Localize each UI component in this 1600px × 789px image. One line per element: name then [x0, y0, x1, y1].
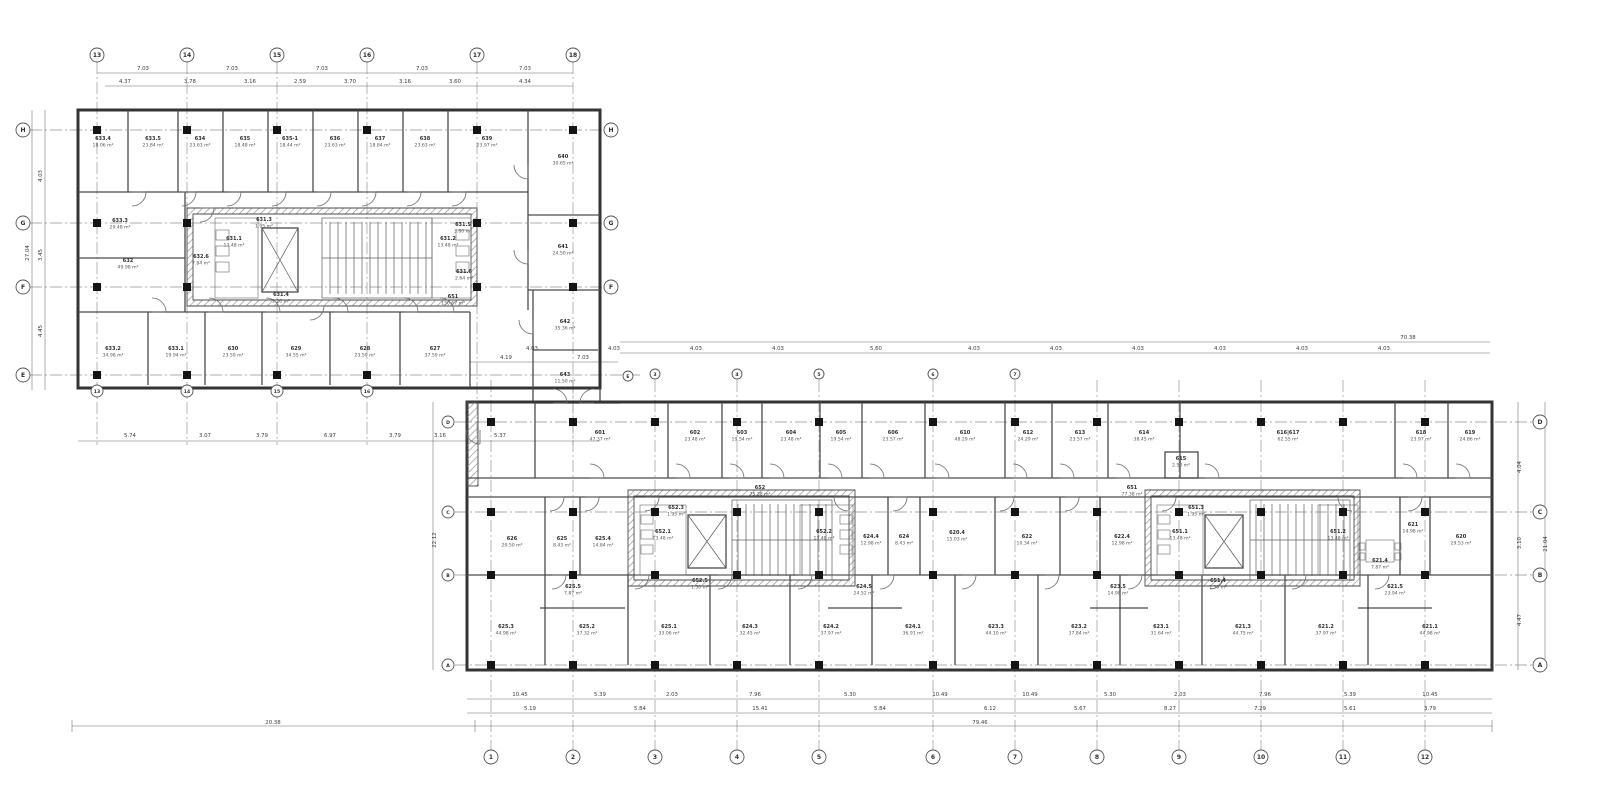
- column-marker: [473, 219, 481, 227]
- room-area: 23.59 m²: [223, 353, 244, 359]
- room-area: 1.95 m²: [255, 224, 273, 230]
- room-area: 24.29 m²: [1018, 437, 1039, 443]
- room-area: 1.50 m²: [691, 585, 709, 591]
- dimension-text: 3.70: [344, 79, 357, 85]
- room-number: 612: [1023, 430, 1034, 436]
- column-marker: [569, 126, 577, 134]
- room-number: 621.1: [1422, 624, 1438, 630]
- room-area: 30.65 m²: [553, 161, 574, 167]
- room-number: 652: [755, 485, 766, 491]
- grid-bubble-label: 7: [1013, 372, 1016, 378]
- dimension-text: 70.38: [1400, 335, 1416, 341]
- room-number: 643: [560, 372, 571, 378]
- column-marker: [651, 661, 659, 669]
- room-area: 13.48 m²: [224, 243, 245, 249]
- dimension-text: 5.30: [1104, 692, 1117, 698]
- grid-bubble-label: 4: [735, 754, 739, 761]
- room-number: 624.5: [856, 584, 872, 590]
- room-number: 622: [1022, 534, 1033, 540]
- grid-bubble-label: 7: [1013, 754, 1017, 761]
- dimension-text: 5.19: [524, 706, 537, 712]
- dimension-text: 3.79: [1424, 706, 1437, 712]
- room-number: 623.5: [1110, 584, 1126, 590]
- room-area: 34.55 m²: [286, 353, 307, 359]
- room-area: 37.59 m²: [425, 353, 446, 359]
- room-number: 621.4: [1372, 558, 1388, 564]
- room-number: 633.1: [168, 346, 184, 352]
- dimension-text: 4.45: [38, 325, 44, 337]
- room-number: 606: [888, 430, 899, 436]
- room-number: 602: [690, 430, 701, 436]
- room-area: 33.06 m²: [659, 631, 680, 637]
- dimension-text: 3.16: [399, 79, 412, 85]
- room-number: 621.2: [1318, 624, 1334, 630]
- elevator-x-icon: [262, 228, 298, 292]
- column-marker: [1093, 508, 1101, 516]
- grid-bubble-label: 3: [653, 754, 657, 761]
- dimension-text: 2.03: [1174, 692, 1186, 698]
- dimension-text: 27.04: [25, 245, 31, 261]
- room-area: 23.97 m²: [477, 143, 498, 149]
- room-area: 7.87 m²: [1371, 565, 1389, 571]
- dimension-text: 21.04: [1543, 536, 1549, 552]
- room-number: 624: [899, 534, 910, 540]
- room-number: 652.1: [655, 529, 671, 535]
- dimension-text: 4.03: [1378, 346, 1390, 352]
- room-number: 651.4: [1210, 578, 1226, 584]
- room-number: 621.5: [1387, 584, 1403, 590]
- column-marker: [569, 418, 577, 426]
- column-marker: [1011, 418, 1019, 426]
- grid-bubble-label: 13: [94, 389, 100, 395]
- grid-bubble-label: 14: [183, 52, 191, 59]
- room-number: 626: [507, 536, 518, 542]
- room-area: 77.38 m²: [1122, 492, 1143, 498]
- room-area: 24.86 m²: [1460, 437, 1481, 443]
- column-marker: [1175, 508, 1183, 516]
- room-area: 23.97 m²: [1411, 437, 1432, 443]
- room-area: 8.43 m²: [895, 541, 913, 547]
- room-area: 24.50 m²: [553, 251, 574, 257]
- dimension-text: 4.03: [1214, 346, 1226, 352]
- grid-bubble-label: 13: [93, 52, 101, 59]
- column-marker: [93, 371, 101, 379]
- door-swings: [132, 165, 1470, 589]
- room-number: 651.2: [1330, 529, 1346, 535]
- room-area: 1.20 m²: [272, 299, 290, 305]
- room-area: 49.98 m²: [118, 265, 139, 271]
- dimension-text: 7.03: [226, 66, 238, 72]
- room-number: 625.5: [565, 584, 581, 590]
- column-marker: [1421, 571, 1429, 579]
- dimension-text: 5.61: [1344, 706, 1356, 712]
- grid-bubble-label: 1: [489, 754, 493, 761]
- room-number: 640: [558, 154, 569, 160]
- room-area: 7.87 m²: [564, 591, 582, 597]
- room-number: 604: [786, 430, 797, 436]
- column-marker: [1421, 418, 1429, 426]
- column-marker: [273, 371, 281, 379]
- column-marker: [1257, 508, 1265, 516]
- room-area: 32.45 m²: [740, 631, 761, 637]
- room-number: 651.3: [1188, 505, 1204, 511]
- grid-bubble-label: F: [609, 284, 613, 291]
- room-area: 38.45 m²: [1134, 437, 1155, 443]
- column-marker: [1257, 418, 1265, 426]
- column-marker: [1175, 571, 1183, 579]
- room-number: 624.2: [823, 624, 839, 630]
- room-area: 23.94 m²: [1385, 591, 1406, 597]
- room-area: 13.48 m²: [438, 243, 459, 249]
- dimension-text: 4.04: [1517, 460, 1523, 473]
- grid-bubble-label: 15: [273, 52, 281, 59]
- room-area: 18.44 m²: [280, 143, 301, 149]
- room-number: 618: [1416, 430, 1427, 436]
- room-area: 12.98 m²: [1112, 541, 1133, 547]
- room-area: 13.48 m²: [653, 536, 674, 542]
- dimension-text: 10.49: [1022, 692, 1038, 698]
- column-marker: [1011, 661, 1019, 669]
- dimension-text: 4.03: [1132, 346, 1144, 352]
- column-marker: [1339, 571, 1347, 579]
- room-area: 37.97 m²: [821, 631, 842, 637]
- column-marker: [733, 508, 741, 516]
- room-number: 633.4: [95, 136, 111, 142]
- room-number: 631.3: [256, 217, 272, 223]
- room-area: 10.34 m²: [1017, 541, 1038, 547]
- column-marker: [733, 418, 741, 426]
- grid-bubble-label: B: [446, 573, 450, 579]
- room-number: 631.2: [440, 236, 456, 242]
- dimension-text: 20.38: [265, 720, 281, 726]
- column-marker: [1175, 418, 1183, 426]
- grid-bubble-label: 14: [184, 389, 190, 395]
- dimension-text: 5.39: [1344, 692, 1357, 698]
- column-marker: [651, 508, 659, 516]
- column-marker: [733, 661, 741, 669]
- room-area: 23.48 m²: [781, 437, 802, 443]
- room-number: 633.3: [112, 218, 128, 224]
- column-marker: [487, 418, 495, 426]
- room-area: 1.50 m²: [1209, 585, 1227, 591]
- column-marker: [815, 508, 823, 516]
- room-number: 625.1: [661, 624, 677, 630]
- room-area: 130.67 m²: [441, 301, 465, 307]
- column-marker: [929, 508, 937, 516]
- dimension-text: 4.03: [526, 346, 538, 352]
- column-marker: [273, 126, 281, 134]
- room-area: 23.63 m²: [325, 143, 346, 149]
- column-marker: [1093, 571, 1101, 579]
- dimension-text: 4.03: [608, 346, 620, 352]
- room-number: 601: [595, 430, 606, 436]
- dimension-text: 7.03: [519, 66, 531, 72]
- dimension-text: 5.84: [874, 706, 887, 712]
- room-area: 44.98 m²: [496, 631, 517, 637]
- room-area: 23.48 m²: [685, 437, 706, 443]
- dimension-text: 4.03: [690, 346, 702, 352]
- grid-bubble-label: A: [446, 663, 450, 669]
- column-marker: [1011, 508, 1019, 516]
- dimension-text: 7.03: [137, 66, 149, 72]
- elevator-x-icon: [1205, 515, 1243, 568]
- dimension-text: 4.19: [500, 355, 513, 361]
- dimension-text: 5.74: [124, 433, 137, 439]
- room-number: 631.4: [273, 292, 289, 298]
- room-number: 627: [430, 346, 441, 352]
- column-marker: [93, 126, 101, 134]
- room-area: 44.98 m²: [1420, 631, 1441, 637]
- grid-bubble-label: 2: [571, 754, 575, 761]
- dimension-text: 4.03: [968, 346, 980, 352]
- grid-lines: [30, 62, 1533, 750]
- dimension-text: 4.37: [119, 79, 131, 85]
- room-area: 23.84 m²: [143, 143, 164, 149]
- dimension-text: 3.79: [256, 433, 269, 439]
- dimension-text: 3.07: [199, 433, 211, 439]
- room-number: 613: [1075, 430, 1086, 436]
- room-number: 631.1: [226, 236, 242, 242]
- room-area: 23.59 m²: [355, 353, 376, 359]
- dimension-text: 2.03: [666, 692, 678, 698]
- room-number: 603: [737, 430, 748, 436]
- room-number: 652.5: [692, 578, 708, 584]
- room-number: 615: [1176, 456, 1187, 462]
- room-number: 625.2: [579, 624, 595, 630]
- room-area: 37.84 m²: [1069, 631, 1090, 637]
- room-area: 18.06 m²: [93, 143, 114, 149]
- grid-bubble-label: 6: [931, 754, 935, 761]
- room-area: 19.54 m²: [732, 437, 753, 443]
- grid-bubble-label: E: [21, 372, 25, 379]
- room-area: 14.98 m²: [1108, 591, 1129, 597]
- grid-bubble-label: 5: [817, 754, 821, 761]
- grid-bubble-label: F: [21, 284, 25, 291]
- dimension-text: 3.16: [434, 433, 447, 439]
- column-marker: [1093, 661, 1101, 669]
- elevator-x-icon: [688, 515, 726, 568]
- dimension-text: 4.34: [519, 79, 532, 85]
- room-area: 18.84 m²: [370, 143, 391, 149]
- dimension-text: 4.03: [772, 346, 784, 352]
- grid-bubble-label: 5: [817, 372, 820, 378]
- room-number: 624.3: [742, 624, 758, 630]
- room-number: 625: [557, 536, 568, 542]
- column-marker: [569, 508, 577, 516]
- room-number: 637: [375, 136, 386, 142]
- grid-bubble-label: 9: [1177, 754, 1181, 761]
- room-number: 632: [123, 258, 134, 264]
- column-marker: [473, 126, 481, 134]
- room-area: 75.38 m²: [750, 492, 771, 498]
- dimension-text: 79.46: [972, 720, 988, 726]
- dimension-text: 4.03: [38, 170, 44, 182]
- column-marker: [1257, 571, 1265, 579]
- column-marker: [183, 219, 191, 227]
- room-number: 651: [1127, 485, 1138, 491]
- dimension-text: 4.03: [1050, 346, 1062, 352]
- room-number: 621.3: [1235, 624, 1251, 630]
- grid-bubble-label: 16: [363, 52, 371, 59]
- stair-upper: [322, 218, 432, 298]
- floor-plan-page: 13141516171813141516HGFEHGFE345671234567…: [0, 0, 1600, 789]
- room-number: 631.6: [456, 269, 472, 275]
- grid-bubble-label: H: [608, 127, 613, 134]
- dimension-text: 10.49: [932, 692, 948, 698]
- column-marker: [1339, 418, 1347, 426]
- grid-bubble-label: 16: [364, 389, 370, 395]
- room-area: 15.03 m²: [947, 537, 968, 543]
- room-area: 36.91 m²: [903, 631, 924, 637]
- room-number: 630: [228, 346, 239, 352]
- room-number: 623.3: [988, 624, 1004, 630]
- column-marker: [93, 219, 101, 227]
- column-marker: [1175, 661, 1183, 669]
- dimension-text: 15.41: [752, 706, 767, 712]
- grid-bubble-label: G: [21, 220, 26, 227]
- dimension-text: 5.30: [844, 692, 857, 698]
- room-number: 641: [558, 244, 569, 250]
- grid-bubbles: 13141516171813141516HGFEHGFE345671234567…: [16, 48, 1547, 764]
- column-marker: [815, 571, 823, 579]
- room-number: 624.1: [905, 624, 921, 630]
- room-area: 35.36 m²: [555, 326, 576, 332]
- floor-plan-svg: 13141516171813141516HGFEHGFE345671234567…: [0, 0, 1600, 789]
- column-marker: [1093, 418, 1101, 426]
- grid-bubble-label: 12: [1421, 754, 1429, 761]
- room-area: 19.54 m²: [831, 437, 852, 443]
- room-area: 13.48 m²: [1328, 536, 1349, 542]
- grid-bubble-label: E: [626, 374, 629, 380]
- room-area: 1.95 m²: [1187, 512, 1205, 518]
- room-area: 29.53 m²: [1451, 541, 1472, 547]
- room-area: 29.48 m²: [110, 225, 131, 231]
- grid-bubble-label: 11: [1339, 754, 1347, 761]
- dimension-text: 5.67: [1074, 706, 1086, 712]
- room-number: 620.4: [949, 530, 965, 536]
- room-area: 37.97 m²: [1316, 631, 1337, 637]
- dimension-text: 7.03: [316, 66, 328, 72]
- column-marker: [1257, 661, 1265, 669]
- room-area: 48.29 m²: [955, 437, 976, 443]
- column-marker: [929, 571, 937, 579]
- dimension-text: 3.16: [244, 79, 257, 85]
- column-marker: [651, 571, 659, 579]
- room-area: 47.37 m²: [590, 437, 611, 443]
- grid-bubble-label: C: [1538, 509, 1543, 516]
- dimension-text: 5.39: [594, 692, 607, 698]
- room-area: 18.48 m²: [235, 143, 256, 149]
- room-number: 610: [960, 430, 971, 436]
- room-area: 23.57 m²: [883, 437, 904, 443]
- room-area: 13.48 m²: [1170, 536, 1191, 542]
- dimension-text: 10.45: [512, 692, 527, 698]
- room-area: 14.98 m²: [1403, 529, 1424, 535]
- column-marker: [1421, 661, 1429, 669]
- room-area: 7.84 m²: [192, 261, 210, 267]
- room-number: 633.5: [145, 136, 161, 142]
- grid-bubble-label: 4: [735, 372, 738, 378]
- room-area: 44.75 m²: [1233, 631, 1254, 637]
- room-number: 651: [448, 294, 459, 300]
- column-marker: [183, 126, 191, 134]
- room-number: 642: [560, 319, 571, 325]
- room-number: 634: [195, 136, 206, 142]
- dimension-text: 6.97: [324, 433, 336, 439]
- grid-bubble-label: 10: [1257, 754, 1265, 761]
- grid-bubble-label: D: [1538, 419, 1543, 426]
- room-number: 638: [420, 136, 431, 142]
- room-number: 625.3: [498, 624, 514, 630]
- dimension-text: 7.03: [577, 355, 589, 361]
- column-marker: [569, 219, 577, 227]
- dimension-text: 3.10: [1517, 536, 1523, 549]
- room-area: 2.64 m²: [455, 276, 473, 282]
- column-marker: [93, 283, 101, 291]
- room-number: 631.5: [455, 222, 471, 228]
- room-number: 619: [1465, 430, 1476, 436]
- room-area: 23.63 m²: [415, 143, 436, 149]
- room-number: 629: [291, 346, 302, 352]
- room-number: 616|617: [1277, 430, 1300, 436]
- room-number: 652.3: [668, 505, 684, 511]
- room-number: 614: [1139, 430, 1150, 436]
- dimension-text: 5.37: [494, 433, 506, 439]
- dimension-text: 7.96: [1259, 692, 1272, 698]
- dimension-text: 3.78: [184, 79, 197, 85]
- room-area: 23.63 m²: [190, 143, 211, 149]
- dimension-text: 3.79: [389, 433, 402, 439]
- room-area: 3.80 m²: [454, 229, 472, 235]
- column-marker: [815, 661, 823, 669]
- column-marker: [929, 418, 937, 426]
- dimension-text: 4.47: [1517, 614, 1523, 626]
- room-area: 14.84 m²: [593, 543, 614, 549]
- grid-bubble-label: 18: [569, 52, 577, 59]
- room-number: 652.2: [816, 529, 832, 535]
- column-marker: [487, 508, 495, 516]
- room-number: 635: [240, 136, 251, 142]
- wall-hatch-left: [467, 402, 478, 486]
- dimension-text: 7.03: [416, 66, 428, 72]
- room-area: 37.32 m²: [577, 631, 598, 637]
- column-marker: [569, 283, 577, 291]
- dimension-text: 5.84: [634, 706, 647, 712]
- room-area: 44.10 m²: [986, 631, 1007, 637]
- room-number: 623.1: [1153, 624, 1169, 630]
- grid-bubble-label: 3: [653, 372, 656, 378]
- room-area: 24.52 m²: [854, 591, 875, 597]
- room-number: 633.2: [105, 346, 121, 352]
- dimension-text: 2.59: [294, 79, 307, 85]
- grid-bubble-label: D: [446, 420, 450, 426]
- structural-columns: [93, 126, 1429, 669]
- grid-bubble-label: G: [609, 220, 614, 227]
- dimension-text: 7.96: [749, 692, 762, 698]
- dimension-text: 3.60: [449, 79, 462, 85]
- column-marker: [569, 661, 577, 669]
- grid-bubble-label: 15: [274, 389, 280, 395]
- column-marker: [183, 371, 191, 379]
- room-number: 639: [482, 136, 493, 142]
- room-number: 622.4: [1114, 534, 1130, 540]
- column-marker: [1011, 571, 1019, 579]
- column-marker: [363, 126, 371, 134]
- column-marker: [1339, 661, 1347, 669]
- room-number: 651.1: [1172, 529, 1188, 535]
- column-marker: [487, 661, 495, 669]
- room-area: 1.95 m²: [667, 512, 685, 518]
